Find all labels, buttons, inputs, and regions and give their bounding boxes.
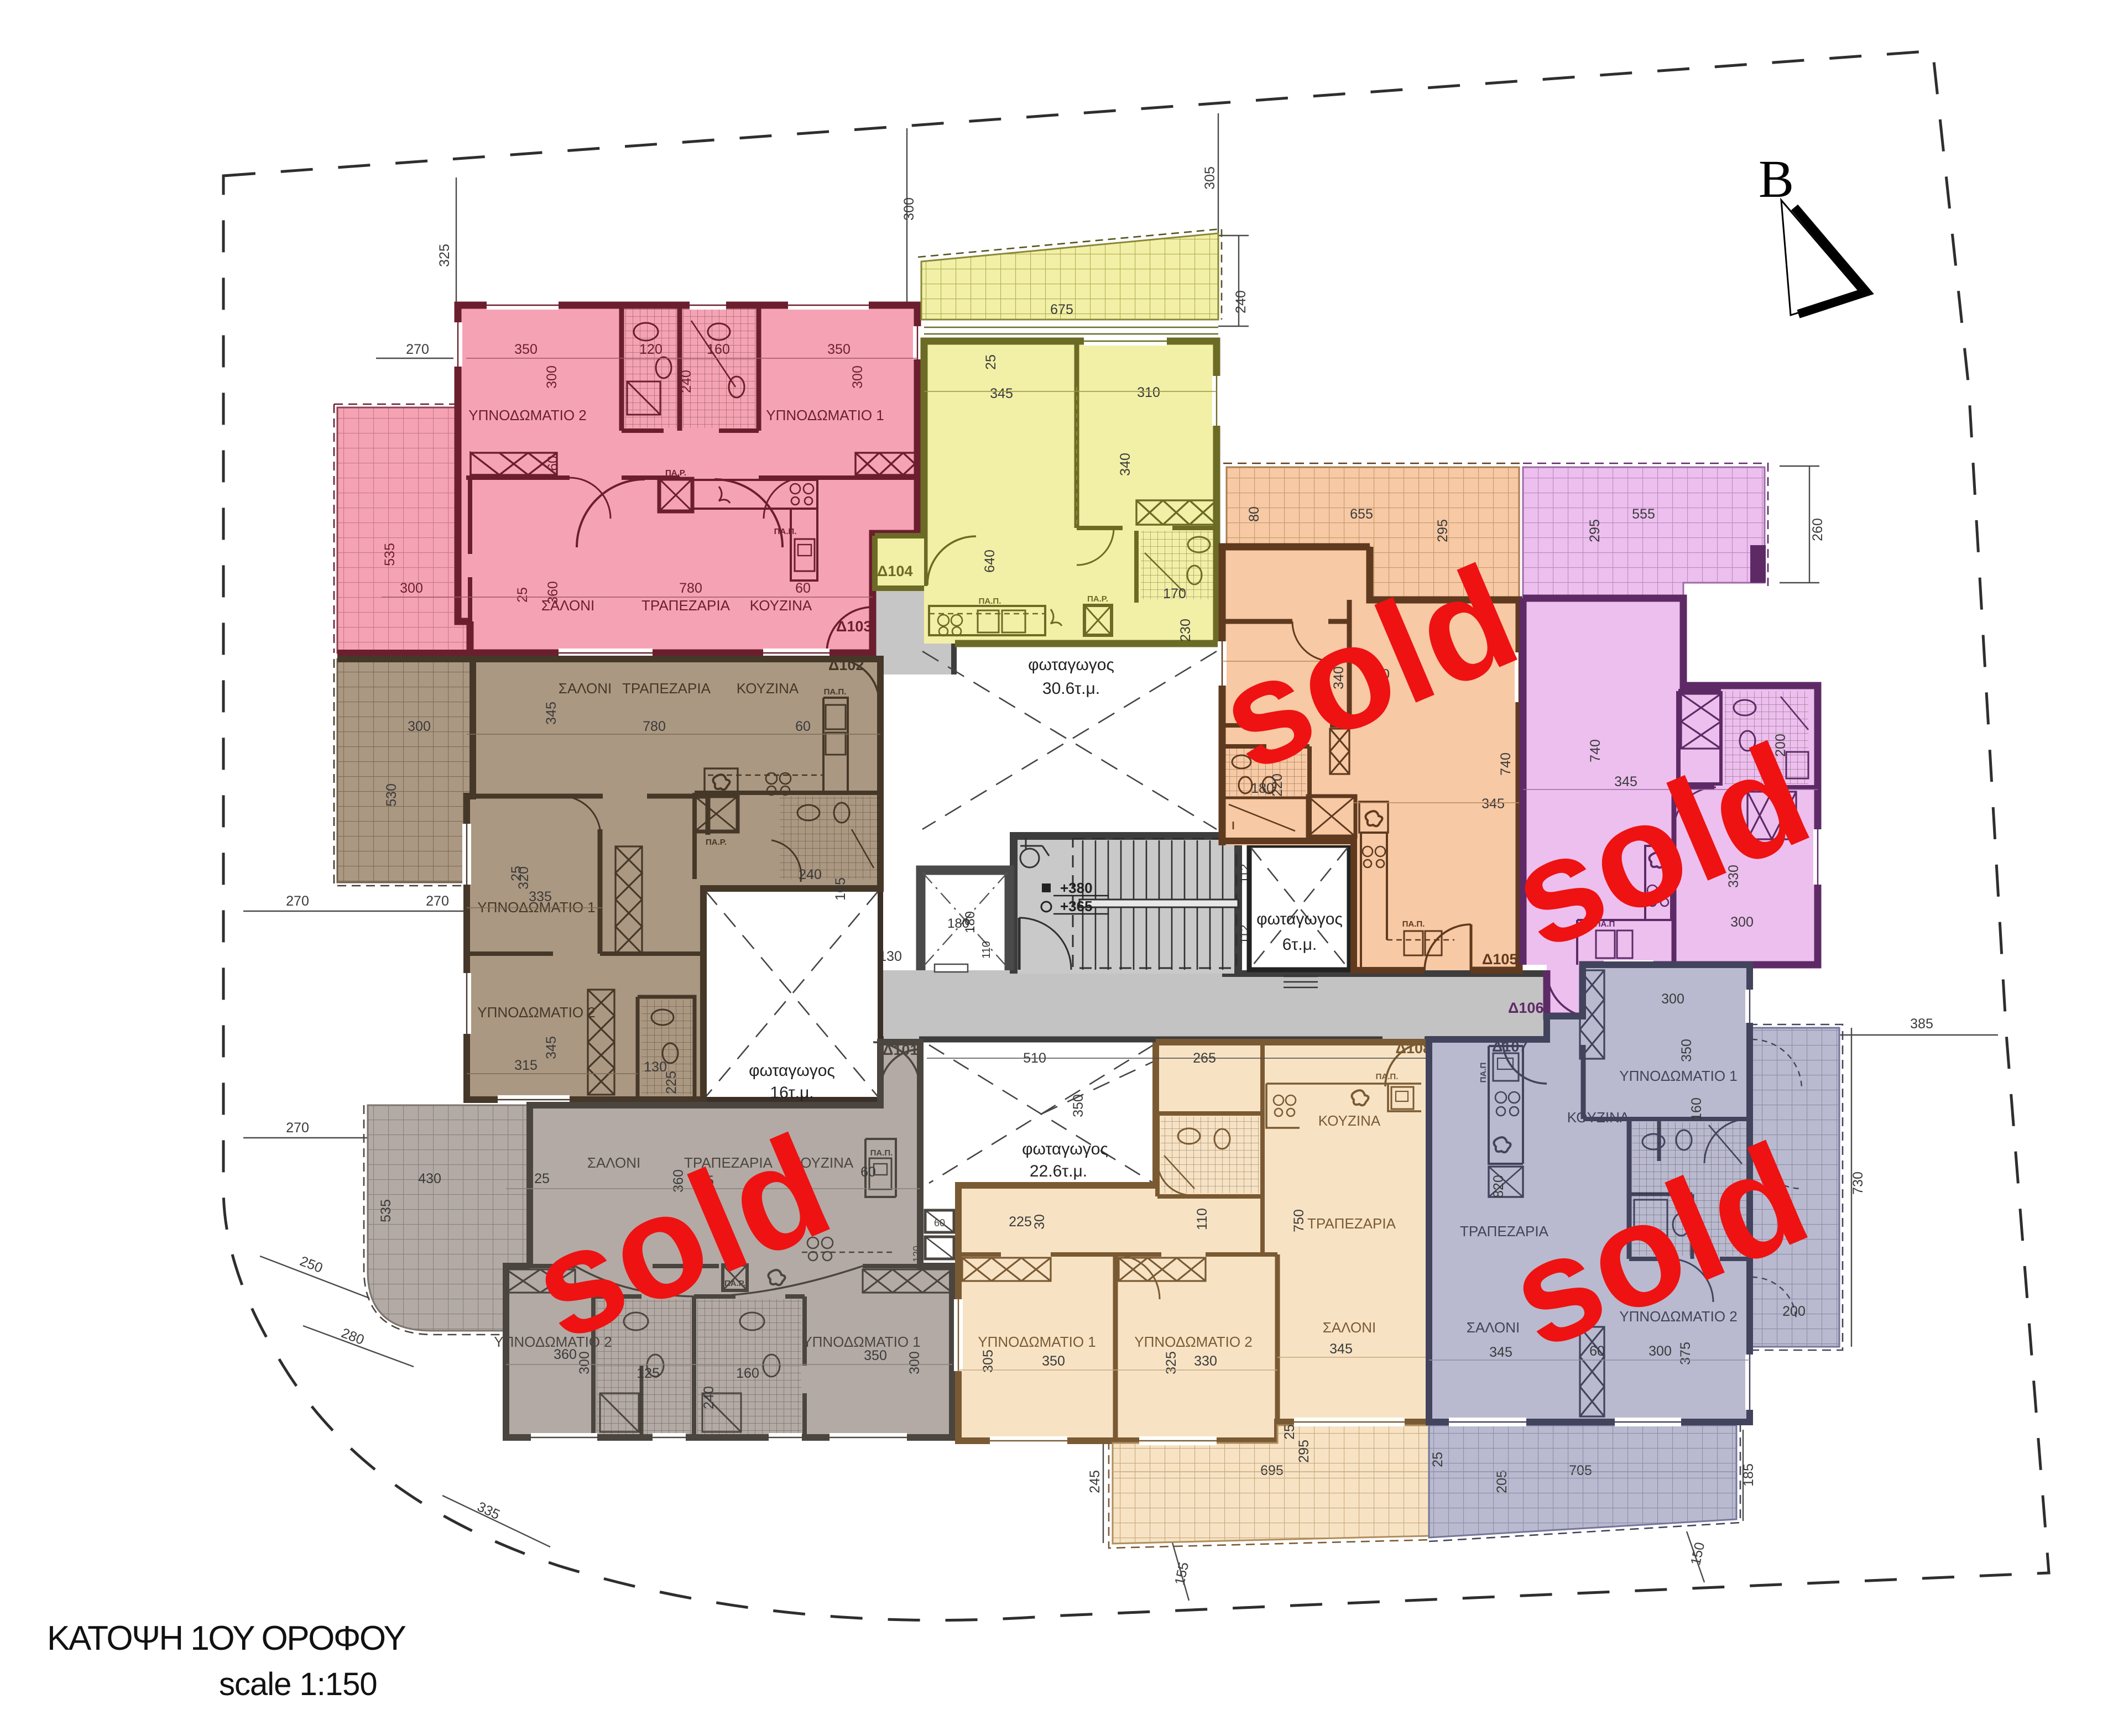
svg-text:ΠΑ.Ρ.: ΠΑ.Ρ. xyxy=(665,468,686,478)
svg-text:350: 350 xyxy=(1679,1039,1694,1062)
svg-text:ΤΡΑΠΕΖΑΡΙΑ: ΤΡΑΠΕΖΑΡΙΑ xyxy=(641,597,731,614)
svg-text:750: 750 xyxy=(1291,1209,1307,1232)
svg-text:ΥΠΝΟΔΩΜΑΤΙΟ 2: ΥΠΝΟΔΩΜΑΤΙΟ 2 xyxy=(477,1004,595,1021)
svg-text:ΚΑΤΟΨΗ 1ΟΥ ΟΡΟΦΟΥ: ΚΑΤΟΨΗ 1ΟΥ ΟΡΟΦΟΥ xyxy=(47,1619,406,1657)
svg-text:780: 780 xyxy=(679,581,702,596)
svg-text:270: 270 xyxy=(426,893,449,909)
svg-text:820: 820 xyxy=(1491,1175,1506,1198)
svg-text:60: 60 xyxy=(934,1217,945,1228)
svg-text:B: B xyxy=(1759,149,1794,208)
svg-text:740: 740 xyxy=(1498,752,1514,776)
svg-text:25: 25 xyxy=(515,587,530,603)
svg-text:335: 335 xyxy=(529,889,552,904)
svg-text:Δ106: Δ106 xyxy=(1508,1000,1543,1016)
svg-text:740: 740 xyxy=(1588,739,1603,762)
svg-text:430: 430 xyxy=(418,1171,441,1186)
svg-text:240: 240 xyxy=(1233,290,1249,313)
svg-text:+365: +365 xyxy=(1060,898,1093,914)
svg-text:Δ103: Δ103 xyxy=(836,618,872,635)
svg-text:ΚΟΥΖΙΝΑ: ΚΟΥΖΙΝΑ xyxy=(1567,1109,1630,1126)
svg-text:ΠΑ.Π.: ΠΑ.Π. xyxy=(774,527,797,536)
svg-text:300: 300 xyxy=(1730,914,1754,930)
svg-text:350: 350 xyxy=(514,342,538,357)
svg-text:25: 25 xyxy=(1282,1424,1297,1440)
svg-text:60: 60 xyxy=(860,1164,876,1180)
svg-text:270: 270 xyxy=(286,893,309,909)
svg-text:205: 205 xyxy=(1494,1470,1510,1493)
svg-text:345: 345 xyxy=(990,386,1013,401)
svg-text:260: 260 xyxy=(1810,518,1825,541)
svg-text:ΣΑΛΟΝΙ: ΣΑΛΟΝΙ xyxy=(1467,1319,1520,1336)
svg-text:270: 270 xyxy=(286,1120,309,1136)
svg-text:535: 535 xyxy=(382,543,398,566)
svg-text:ΥΠΝΟΔΩΜΑΤΙΟ 1: ΥΠΝΟΔΩΜΑΤΙΟ 1 xyxy=(766,407,884,423)
svg-text:345: 345 xyxy=(544,702,559,725)
svg-text:120: 120 xyxy=(911,1246,922,1262)
svg-text:Δ102: Δ102 xyxy=(828,657,864,673)
svg-text:315: 315 xyxy=(514,1058,538,1073)
svg-text:345: 345 xyxy=(1481,796,1505,812)
svg-text:730: 730 xyxy=(1850,1172,1866,1195)
svg-text:300: 300 xyxy=(1649,1343,1672,1359)
svg-text:535: 535 xyxy=(378,1199,394,1222)
svg-text:240: 240 xyxy=(701,1386,717,1409)
svg-text:φωταγωγος: φωταγωγος xyxy=(1022,1140,1108,1158)
svg-text:ΤΡΑΠΕΖΑΡΙΑ: ΤΡΑΠΕΖΑΡΙΑ xyxy=(622,680,711,697)
svg-text:305: 305 xyxy=(1202,166,1218,190)
svg-text:180: 180 xyxy=(963,911,978,933)
svg-text:ΣΑΛΟΝΙ: ΣΑΛΟΝΙ xyxy=(559,680,612,697)
svg-text:325: 325 xyxy=(437,244,452,267)
svg-text:325: 325 xyxy=(1164,1351,1179,1374)
svg-text:60: 60 xyxy=(795,581,811,596)
svg-text:350: 350 xyxy=(1071,1094,1086,1117)
svg-text:80: 80 xyxy=(1246,506,1262,522)
svg-text:ΠΑ.Π: ΠΑ.Π xyxy=(1479,1063,1488,1083)
svg-text:185: 185 xyxy=(1741,1463,1756,1487)
svg-text:345: 345 xyxy=(544,1036,559,1059)
svg-text:ΤΡΑΠΕΖΑΡΙΑ: ΤΡΑΠΕΖΑΡΙΑ xyxy=(1307,1215,1396,1232)
svg-text:300: 300 xyxy=(408,719,431,734)
svg-text:655: 655 xyxy=(1350,506,1373,522)
svg-text:350: 350 xyxy=(1042,1353,1065,1369)
svg-text:25: 25 xyxy=(983,354,999,370)
svg-text:360: 360 xyxy=(545,581,561,604)
svg-text:25: 25 xyxy=(534,1171,550,1186)
svg-text:ΚΟΥΖΙΝΑ: ΚΟΥΖΙΝΑ xyxy=(1318,1112,1381,1129)
svg-text:φωταγωγος: φωταγωγος xyxy=(749,1062,835,1080)
svg-text:160: 160 xyxy=(707,342,730,357)
svg-text:780: 780 xyxy=(643,719,666,734)
svg-text:ΣΑΛΟΝΙ: ΣΑΛΟΝΙ xyxy=(587,1154,640,1171)
svg-text:φωταγωγος: φωταγωγος xyxy=(1028,656,1114,674)
svg-text:ΠΑ.Ρ.: ΠΑ.Ρ. xyxy=(1087,594,1108,604)
svg-text:6τ.μ.: 6τ.μ. xyxy=(1282,935,1317,954)
svg-text:295: 295 xyxy=(1435,519,1451,542)
svg-text:125: 125 xyxy=(637,1366,660,1381)
svg-text:ΠΑ.Π.: ΠΑ.Π. xyxy=(1402,919,1425,929)
svg-text:270: 270 xyxy=(406,342,429,357)
svg-text:165: 165 xyxy=(833,877,848,901)
svg-text:Δ107: Δ107 xyxy=(1492,1038,1527,1055)
svg-text:340: 340 xyxy=(1118,453,1133,476)
svg-text:30.6τ.μ.: 30.6τ.μ. xyxy=(1042,679,1100,698)
svg-text:ΣΑΛΟΝΙ: ΣΑΛΟΝΙ xyxy=(1323,1319,1376,1336)
svg-text:695: 695 xyxy=(1260,1463,1284,1478)
svg-text:ΠΑ.Π.: ΠΑ.Π. xyxy=(824,687,847,697)
svg-text:375: 375 xyxy=(1678,1342,1693,1365)
svg-text:230: 230 xyxy=(1178,619,1193,642)
svg-text:310: 310 xyxy=(1137,385,1160,400)
svg-text:300: 300 xyxy=(544,365,560,389)
svg-text:225: 225 xyxy=(1009,1214,1032,1230)
svg-text:675: 675 xyxy=(1050,302,1073,317)
svg-text:350: 350 xyxy=(864,1348,887,1363)
svg-text:240: 240 xyxy=(679,370,694,393)
svg-text:640: 640 xyxy=(982,550,998,573)
svg-text:240: 240 xyxy=(799,867,822,882)
svg-text:30: 30 xyxy=(1032,1214,1047,1230)
svg-text:16τ.μ.: 16τ.μ. xyxy=(770,1084,813,1102)
svg-text:Δ101: Δ101 xyxy=(883,1042,918,1058)
svg-text:120: 120 xyxy=(639,342,662,357)
svg-text:300: 300 xyxy=(850,365,865,389)
svg-text:ΚΟΥΖΙΝΑ: ΚΟΥΖΙΝΑ xyxy=(737,680,799,697)
svg-text:25: 25 xyxy=(509,866,524,881)
svg-text:ΥΠΝΟΔΩΜΑΤΙΟ 1: ΥΠΝΟΔΩΜΑΤΙΟ 1 xyxy=(802,1334,920,1350)
svg-text:22.6τ.μ.: 22.6τ.μ. xyxy=(1030,1162,1087,1180)
svg-text:ΥΠΝΟΔΩΜΑΤΙΟ 2: ΥΠΝΟΔΩΜΑΤΙΟ 2 xyxy=(1134,1334,1252,1350)
svg-text:245: 245 xyxy=(1087,1470,1103,1493)
svg-text:705: 705 xyxy=(1569,1463,1592,1478)
svg-text:160: 160 xyxy=(736,1366,759,1381)
svg-text:300: 300 xyxy=(400,581,423,596)
svg-text:ΥΠΝΟΔΩΜΑΤΙΟ 2: ΥΠΝΟΔΩΜΑΤΙΟ 2 xyxy=(468,407,586,423)
svg-text:555: 555 xyxy=(1632,506,1655,522)
svg-text:295: 295 xyxy=(1587,519,1603,542)
svg-text:300: 300 xyxy=(1661,991,1684,1007)
svg-text:60: 60 xyxy=(795,719,811,734)
svg-text:110: 110 xyxy=(1194,1208,1210,1230)
svg-text:160: 160 xyxy=(1689,1097,1704,1121)
svg-text:330: 330 xyxy=(1194,1353,1217,1369)
svg-text:170: 170 xyxy=(1163,586,1186,602)
svg-text:300: 300 xyxy=(901,197,917,221)
svg-text:Δ105: Δ105 xyxy=(1482,951,1517,968)
svg-text:ΠΑ.Π.: ΠΑ.Π. xyxy=(870,1148,893,1158)
svg-text:200: 200 xyxy=(1782,1304,1806,1319)
svg-text:ΠΑ.Ρ.: ΠΑ.Ρ. xyxy=(706,838,727,847)
svg-text:530: 530 xyxy=(384,783,399,807)
svg-text:ΠΑ.Π.: ΠΑ.Π. xyxy=(979,597,1001,606)
svg-text:25: 25 xyxy=(1430,1452,1446,1467)
svg-text:ΥΠΝΟΔΩΜΑΤΙΟ 1: ΥΠΝΟΔΩΜΑΤΙΟ 1 xyxy=(978,1334,1095,1350)
svg-text:110: 110 xyxy=(980,941,993,959)
svg-text:ΥΠΝΟΔΩΜΑΤΙΟ 1: ΥΠΝΟΔΩΜΑΤΙΟ 1 xyxy=(1619,1068,1737,1084)
svg-text:+380: +380 xyxy=(1060,880,1093,896)
svg-text:300: 300 xyxy=(907,1351,922,1374)
svg-text:350: 350 xyxy=(827,342,851,357)
svg-text:345: 345 xyxy=(1329,1341,1353,1357)
svg-text:scale 1:150: scale 1:150 xyxy=(219,1666,377,1702)
svg-text:60: 60 xyxy=(545,456,561,471)
svg-text:295: 295 xyxy=(1296,1440,1312,1463)
svg-text:Δ104: Δ104 xyxy=(877,563,912,579)
svg-text:345: 345 xyxy=(1489,1345,1512,1360)
svg-text:ΚΟΥΖΙΝΑ: ΚΟΥΖΙΝΑ xyxy=(750,597,812,614)
svg-text:385: 385 xyxy=(1910,1016,1933,1032)
svg-text:225: 225 xyxy=(664,1071,679,1094)
svg-text:305: 305 xyxy=(980,1350,996,1373)
svg-text:φωταγωγος: φωταγωγος xyxy=(1256,910,1343,928)
